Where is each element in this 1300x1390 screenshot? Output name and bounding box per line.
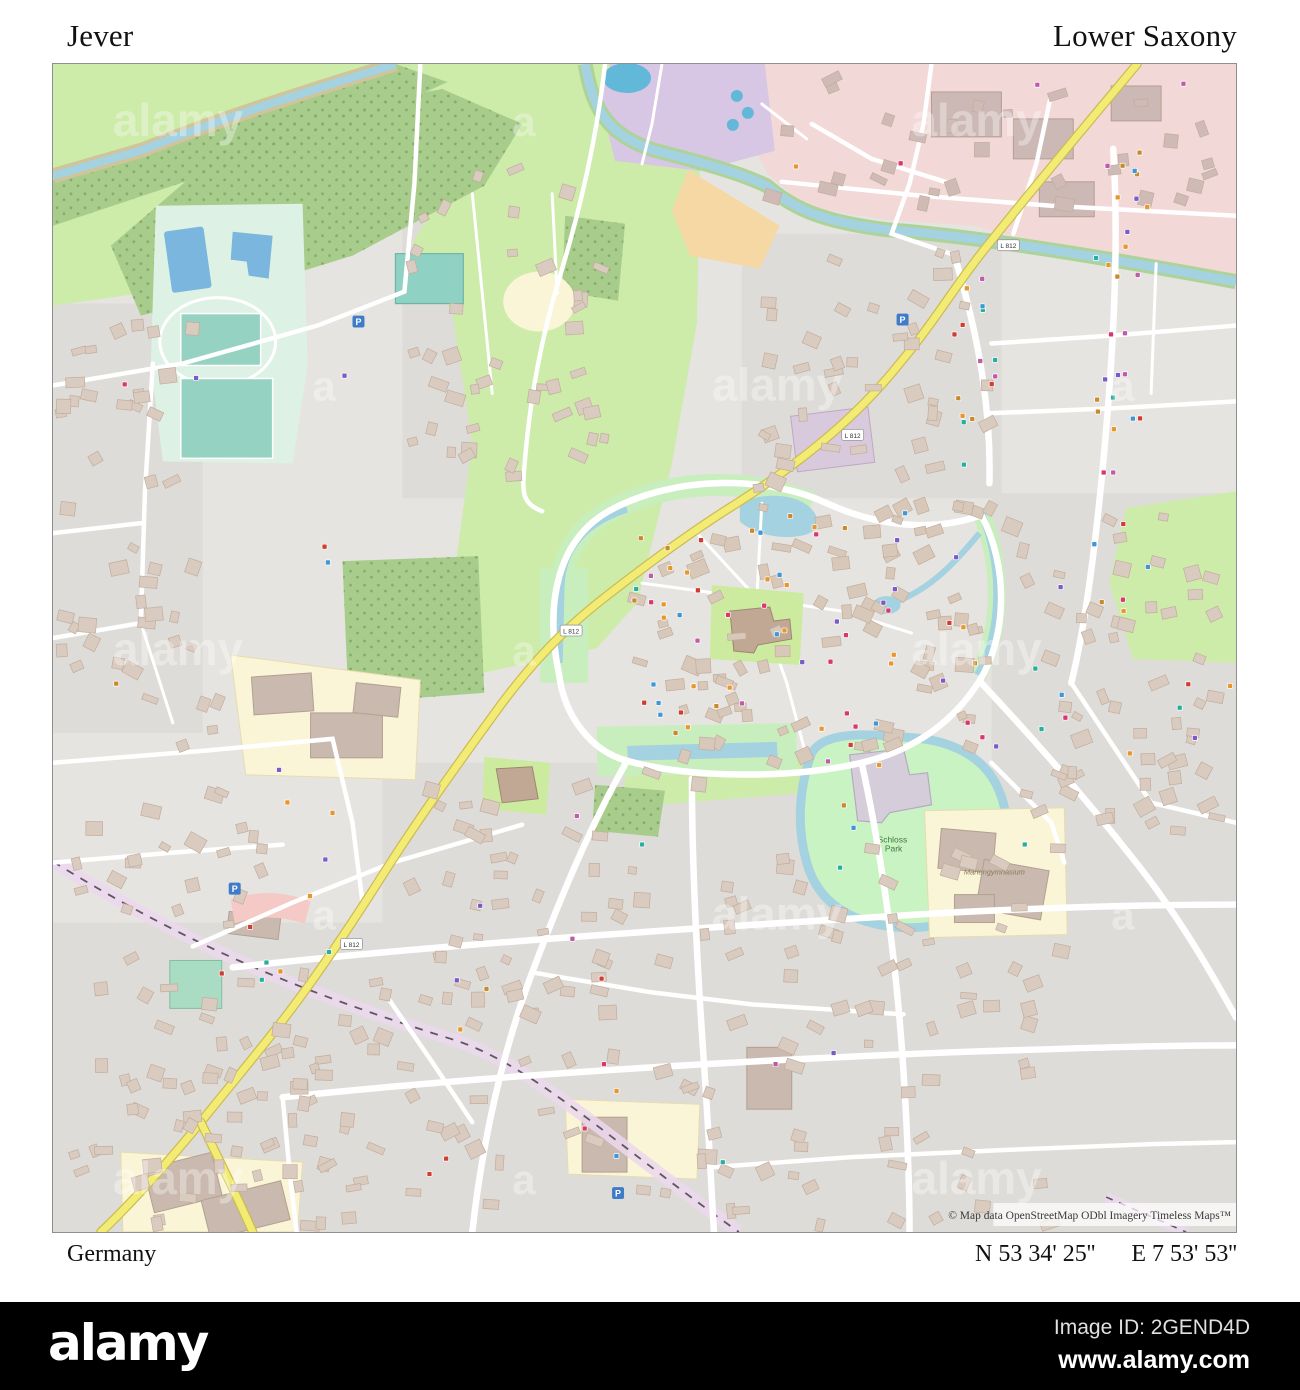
poi-marker (1106, 262, 1111, 267)
poi-marker (726, 612, 731, 617)
poi-marker (1123, 244, 1128, 249)
poi-marker (978, 358, 983, 363)
poi-marker (1134, 196, 1139, 201)
poi-marker (877, 763, 882, 768)
building-footprint (761, 297, 776, 308)
building-footprint (315, 1070, 333, 1081)
building-footprint (117, 400, 133, 411)
poi-marker (848, 742, 853, 747)
building-footprint (953, 501, 964, 512)
poi-marker (964, 286, 969, 291)
building-footprint (794, 1142, 808, 1152)
poi-marker (614, 1154, 619, 1159)
building-footprint (1059, 701, 1072, 713)
poi-marker (720, 1160, 725, 1165)
poi-marker (330, 810, 335, 815)
building-footprint (850, 445, 867, 455)
poi-marker (838, 865, 843, 870)
building-footprint (236, 822, 249, 834)
poi-marker (582, 1126, 587, 1131)
poi-marker (691, 684, 696, 689)
poi-marker (122, 382, 127, 387)
poi-marker (248, 925, 253, 930)
building-footprint (442, 992, 452, 1005)
building-footprint (491, 898, 509, 909)
poi-marker (994, 744, 999, 749)
poi-marker (1186, 682, 1191, 687)
building-footprint (185, 322, 199, 336)
building-footprint (471, 992, 484, 1007)
poi-marker (699, 538, 704, 543)
alamy-watermark: a (313, 892, 337, 939)
building-footprint (248, 830, 258, 843)
poi-marker (895, 538, 900, 543)
poi-marker (989, 382, 994, 387)
poi-marker (1095, 409, 1100, 414)
building-footprint (1146, 602, 1157, 613)
building-footprint (589, 863, 600, 876)
building-footprint (865, 385, 881, 391)
building-footprint (929, 188, 940, 196)
building-footprint (928, 406, 938, 421)
poi-marker (828, 659, 833, 664)
building-footprint (888, 913, 898, 923)
alamy-watermark: alamy (912, 94, 1043, 146)
poi-marker (843, 633, 848, 638)
building-footprint (1168, 770, 1182, 785)
country-label: Germany (67, 1241, 156, 1268)
poi-marker (285, 800, 290, 805)
poi-marker (834, 619, 839, 624)
poi-marker (812, 525, 817, 530)
building-footprint (901, 1087, 915, 1099)
road-shield: L 812 (997, 240, 1019, 251)
building-footprint (203, 1073, 219, 1084)
poi-marker (574, 814, 579, 819)
building-footprint (1134, 728, 1147, 738)
poi-marker (952, 332, 957, 337)
building-footprint (216, 1037, 227, 1052)
building-footprint (227, 1112, 242, 1122)
building-footprint (163, 1078, 177, 1089)
building-footprint (598, 1005, 616, 1020)
poi-marker (458, 1027, 463, 1032)
coordinates-label: N 53 34' 25'' E 7 53' 53'' (975, 1241, 1237, 1268)
alamy-watermark: alamy (113, 94, 244, 146)
poi-marker (980, 276, 985, 281)
building-footprint (205, 1133, 222, 1143)
building-footprint (85, 345, 97, 354)
svg-text:P: P (355, 317, 361, 327)
alamy-watermark: alamy (912, 1152, 1043, 1204)
building-footprint (832, 556, 850, 571)
road-shield: L 812 (842, 429, 864, 440)
building-footprint (131, 319, 144, 331)
poi-marker (427, 1172, 432, 1177)
alamy-watermark: a (512, 98, 536, 145)
poi-marker (1111, 427, 1116, 432)
poi-marker (1145, 564, 1150, 569)
poi-marker (1120, 163, 1125, 168)
poi-marker (891, 652, 896, 657)
building-footprint (581, 912, 596, 921)
building-footprint (788, 1171, 799, 1180)
poi-marker (638, 536, 643, 541)
poi-marker (695, 588, 700, 593)
poi-marker (478, 903, 483, 908)
poi-marker (454, 978, 459, 983)
city-church (496, 767, 538, 803)
building-footprint (928, 398, 939, 406)
building-footprint (338, 1015, 351, 1027)
poi-marker (1138, 416, 1143, 421)
building-footprint (636, 1185, 650, 1195)
poi-marker (1121, 522, 1126, 527)
poi-marker (851, 825, 856, 830)
building-footprint (983, 1000, 1000, 1012)
poi-marker (219, 971, 224, 976)
building-footprint (139, 576, 158, 588)
building-footprint (303, 1135, 318, 1147)
building-footprint (158, 367, 177, 384)
poi-marker (1101, 470, 1106, 475)
alamy-url: www.alamy.com (1054, 1346, 1250, 1375)
poi-marker (658, 712, 663, 717)
building-footprint (316, 1217, 326, 1230)
poi-marker (661, 602, 666, 607)
poi-marker (956, 396, 961, 401)
svg-text:P: P (615, 1189, 621, 1199)
building-footprint (473, 933, 483, 940)
building-footprint (1170, 826, 1185, 836)
poi-marker (892, 587, 897, 592)
poi-marker (842, 526, 847, 531)
poi-marker (1059, 692, 1064, 697)
building-footprint (133, 391, 150, 404)
poi-marker (685, 725, 690, 730)
attribution-text: © Map data OpenStreetMap ODbl Imagery Ti… (948, 1210, 1231, 1222)
alamy-watermark: alamy (113, 1152, 244, 1204)
sports-pitch (181, 378, 273, 458)
poi-marker (993, 374, 998, 379)
building-footprint (882, 544, 898, 558)
building-footprint (144, 607, 163, 622)
poi-marker (1177, 705, 1182, 710)
poi-marker (853, 724, 858, 729)
building-footprint (60, 501, 76, 516)
building-footprint (379, 988, 392, 1001)
poi-marker (1122, 331, 1127, 336)
building-footprint (733, 1206, 750, 1214)
building-footprint (1108, 632, 1118, 643)
building-footprint (1113, 560, 1132, 578)
alamy-watermark: a (1111, 892, 1135, 939)
poi-marker (889, 661, 894, 666)
building-footprint (368, 1044, 380, 1055)
building-footprint (727, 632, 746, 640)
poi-marker (668, 566, 673, 571)
building-footprint (201, 997, 217, 1011)
building-footprint (1134, 99, 1148, 107)
building-footprint (169, 611, 179, 623)
poi-marker (678, 710, 683, 715)
leisure-area (503, 272, 575, 332)
map-image: Schloss Park (52, 63, 1237, 1233)
building-footprint (766, 308, 777, 321)
poi-marker (322, 544, 327, 549)
alamy-watermark: a (313, 362, 337, 409)
svg-text:L 812: L 812 (1000, 243, 1016, 250)
poi-marker (750, 528, 755, 533)
poi-marker (1111, 470, 1116, 475)
building-footprint (508, 206, 520, 218)
poi-marker (661, 615, 666, 620)
building-footprint (66, 377, 85, 388)
building-footprint (340, 1112, 355, 1127)
alamy-watermark: a (1111, 362, 1135, 409)
poi-marker (278, 969, 283, 974)
alamy-watermark: alamy (712, 358, 843, 410)
svg-text:L 812: L 812 (344, 942, 360, 949)
svg-text:P: P (900, 315, 906, 325)
svg-text:L 812: L 812 (845, 433, 861, 440)
poi-marker (788, 514, 793, 519)
building-footprint (1164, 133, 1179, 148)
building-footprint (864, 843, 880, 854)
poi-marker (601, 1062, 606, 1067)
poi-marker (774, 632, 779, 637)
poi-marker (844, 711, 849, 716)
poi-marker (886, 608, 891, 613)
building-footprint (697, 1154, 706, 1169)
building-footprint (298, 1096, 311, 1112)
poi-marker (873, 721, 878, 726)
building-footprint (86, 821, 103, 835)
alamy-logo: alamy (48, 1314, 207, 1372)
building-footprint (758, 503, 768, 512)
building-footprint (922, 1074, 940, 1085)
building-footprint (961, 992, 977, 999)
building-footprint (470, 1096, 488, 1104)
parking-icon: P (897, 314, 909, 326)
poi-marker (758, 530, 763, 535)
poi-marker (980, 304, 985, 309)
building-footprint (699, 737, 715, 750)
building-footprint (406, 1188, 421, 1196)
building-footprint (1141, 753, 1155, 765)
building-footprint (592, 831, 608, 841)
building-footprint (1054, 196, 1074, 212)
building-footprint (700, 928, 710, 940)
poi-marker (782, 628, 787, 633)
poi-marker (831, 1051, 836, 1056)
poi-marker (961, 462, 966, 467)
poi-marker (1120, 597, 1125, 602)
building-footprint (665, 678, 684, 691)
poi-marker (264, 960, 269, 965)
building-footprint (691, 776, 707, 792)
alamy-watermark: alamy (912, 623, 1043, 675)
poi-marker (1095, 397, 1100, 402)
building-footprint (660, 1188, 671, 1198)
poi-marker (444, 1156, 449, 1161)
poi-marker (326, 949, 331, 954)
poi-marker (656, 701, 661, 706)
poi-marker (1130, 416, 1135, 421)
svg-text:P: P (232, 884, 238, 894)
poi-marker (114, 681, 119, 686)
building-footprint (207, 725, 218, 734)
parking-icon: P (229, 883, 241, 895)
building-footprint (127, 1103, 139, 1115)
pool-pond (603, 64, 651, 93)
poi-marker (1103, 377, 1108, 382)
poi-marker (194, 375, 199, 380)
building-footprint (1108, 701, 1121, 714)
building-footprint (147, 325, 160, 338)
poi-marker (640, 842, 645, 847)
poi-marker (323, 857, 328, 862)
building-footprint (470, 384, 479, 394)
building-footprint (753, 483, 764, 492)
building-footprint (879, 1136, 893, 1152)
building-footprint (272, 1022, 291, 1038)
building-footprint (742, 709, 753, 721)
poi-marker (342, 373, 347, 378)
poi-marker (1132, 168, 1137, 173)
building-footprint (1021, 1000, 1038, 1017)
poi-marker (1125, 229, 1130, 234)
poi-marker (903, 511, 908, 516)
poi-marker (1039, 727, 1044, 732)
building-footprint (607, 1049, 620, 1065)
building-footprint (776, 853, 790, 864)
building-footprint (774, 443, 791, 458)
building-footprint (1011, 903, 1027, 911)
poi-marker (1035, 82, 1040, 87)
building-footprint (863, 525, 881, 539)
building-footprint (95, 1146, 113, 1155)
building-footprint (633, 892, 650, 908)
poi-marker (277, 767, 282, 772)
poi-marker (1092, 542, 1097, 547)
poi-marker (784, 583, 789, 588)
building-footprint (127, 853, 142, 867)
region-title: Lower Saxony (1053, 18, 1237, 54)
building-footprint (256, 843, 267, 854)
building-footprint (959, 301, 970, 310)
poi-marker (1063, 715, 1068, 720)
building-footprint (1076, 613, 1086, 622)
building-footprint (447, 447, 456, 458)
poi-marker (1145, 205, 1150, 210)
parking-icon: P (353, 316, 365, 328)
image-id-label: Image ID: 2GEND4D (1054, 1316, 1250, 1340)
poi-marker (1135, 272, 1140, 277)
building-footprint (257, 1092, 267, 1101)
building-footprint (95, 1059, 108, 1073)
poi-marker (1192, 735, 1197, 740)
building-footprint (573, 290, 582, 301)
poi-marker (970, 416, 975, 421)
poi-marker (1127, 751, 1132, 756)
poi-marker (993, 357, 998, 362)
building-footprint (822, 636, 842, 648)
alamy-watermark: alamy (113, 623, 244, 675)
building-footprint (1113, 532, 1127, 543)
building-footprint (283, 1165, 297, 1179)
building-footprint (1140, 778, 1151, 790)
poi-marker (634, 587, 639, 592)
poi-marker (762, 603, 767, 608)
poi-marker (1115, 274, 1120, 279)
poi-marker (599, 976, 604, 981)
building-footprint (599, 433, 609, 443)
building-footprint (293, 1079, 308, 1090)
building-footprint (847, 357, 858, 367)
poi-marker (960, 413, 965, 418)
building-footprint (781, 125, 794, 137)
building-footprint (56, 399, 71, 414)
poi-marker (1137, 150, 1142, 155)
poi-marker (632, 598, 637, 603)
poi-marker (1058, 585, 1063, 590)
poi-marker (1228, 683, 1233, 688)
poi-marker (570, 936, 575, 941)
building-footprint (298, 968, 309, 982)
poi-marker (800, 660, 805, 665)
building-footprint (565, 321, 583, 335)
map-canvas: Schloss Park (53, 64, 1236, 1232)
building-footprint (449, 303, 463, 314)
alamy-footer-bar: alamy Image ID: 2GEND4D www.alamy.com (0, 1302, 1300, 1390)
building-footprint (495, 1155, 504, 1170)
building-footprint (148, 562, 162, 576)
poi-marker (881, 600, 886, 605)
poi-marker (1105, 163, 1110, 168)
building-footprint (608, 898, 623, 909)
building-footprint (587, 432, 599, 446)
building-footprint (698, 681, 708, 690)
poi-marker (793, 164, 798, 169)
poi-marker (642, 700, 647, 705)
building-footprint (223, 920, 234, 928)
building-footprint (886, 567, 896, 579)
building-footprint (494, 871, 508, 879)
poi-marker (941, 678, 946, 683)
poi-marker (965, 720, 970, 725)
poi-marker (1094, 255, 1099, 260)
poi-marker (954, 555, 959, 560)
building-footprint (78, 617, 97, 633)
poi-marker (819, 726, 824, 731)
building-footprint (342, 1212, 357, 1225)
building-footprint (160, 984, 178, 992)
building-footprint (933, 268, 952, 281)
building-footprint (507, 249, 517, 257)
alamy-watermark: a (512, 627, 536, 674)
poi-marker (259, 977, 264, 982)
poi-marker (898, 161, 903, 166)
poi-marker (484, 986, 489, 991)
poi-marker (825, 759, 830, 764)
building-footprint (1050, 844, 1065, 853)
poi-marker (961, 420, 966, 425)
poi-marker (1022, 842, 1027, 847)
poi-marker (739, 701, 744, 706)
building-footprint (1171, 717, 1181, 729)
building-footprint (288, 1113, 297, 1127)
